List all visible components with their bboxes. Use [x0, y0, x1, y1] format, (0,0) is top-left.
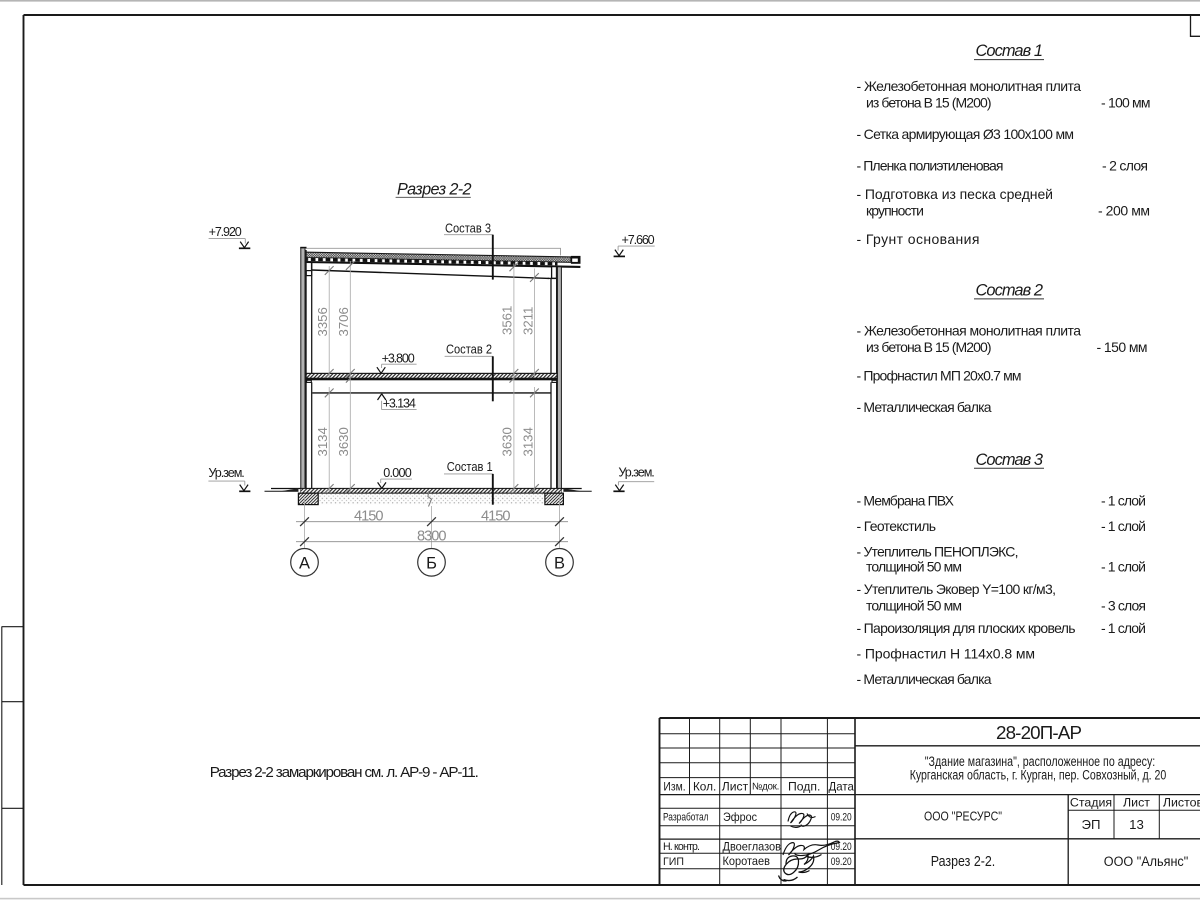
svg-text:Н. контр.: Н. контр.	[663, 841, 700, 853]
svg-text:толщиной 50 мм: толщиной 50 мм	[866, 559, 962, 575]
svg-text:Изм.: Изм.	[663, 780, 685, 794]
svg-text:- Металлическая балка: - Металлическая балка	[857, 399, 992, 415]
svg-text:- 1 слой: - 1 слой	[1101, 493, 1146, 509]
svg-text:09.20: 09.20	[831, 841, 852, 853]
svg-text:3561: 3561	[500, 306, 515, 335]
svg-text:Кол.: Кол.	[693, 780, 716, 794]
svg-text:- Профнастил МП 20х0.7 мм: - Профнастил МП 20х0.7 мм	[857, 368, 1022, 384]
svg-text:- 1 слой: - 1 слой	[1101, 518, 1146, 534]
svg-text:ООО "РЕСУРС": ООО "РЕСУРС"	[924, 809, 1002, 824]
svg-text:- Железобетонная монолитная п: - Железобетонная монолитная плита	[857, 323, 1082, 339]
svg-text:ГИП: ГИП	[663, 856, 684, 868]
svg-text:Дата: Дата	[829, 780, 854, 794]
svg-text:- Железобетонная монолитная п: - Железобетонная монолитная плита	[857, 78, 1082, 94]
svg-text:Двоеглазов: Двоеглазов	[723, 840, 782, 854]
svg-text:№док.: №док.	[752, 782, 779, 793]
svg-text:В: В	[554, 554, 565, 572]
svg-text:Стадия: Стадия	[1070, 796, 1112, 810]
svg-text:Разрез 2-2.: Разрез 2-2.	[931, 854, 996, 870]
svg-text:- Грунт основания: - Грунт основания	[857, 231, 980, 247]
svg-text:Состав 2: Состав 2	[976, 281, 1044, 299]
svg-text:- 150 мм: - 150 мм	[1097, 339, 1148, 355]
svg-text:- Металлическая балка: - Металлическая балка	[857, 671, 992, 687]
svg-text:- Сетка армирующая Ø3 100х100: - Сетка армирующая Ø3 100х100 мм	[857, 126, 1075, 142]
svg-text:из бетона В 15 (М200): из бетона В 15 (М200)	[866, 339, 992, 355]
svg-text:Ур.зем.: Ур.зем.	[618, 465, 654, 479]
svg-text:4150: 4150	[354, 508, 384, 524]
svg-text:13: 13	[1129, 817, 1144, 832]
svg-text:- Утеплитель Эковер Y=100 кг/м: - Утеплитель Эковер Y=100 кг/м3,	[857, 581, 1057, 597]
svg-text:- Мембрана ПВХ: - Мембрана ПВХ	[857, 493, 955, 509]
svg-text:3134: 3134	[521, 427, 536, 456]
svg-text:Состав 3: Состав 3	[445, 220, 491, 235]
svg-text:3706: 3706	[336, 307, 351, 336]
svg-text:Разработал: Разработал	[663, 812, 709, 824]
svg-text:3211: 3211	[521, 307, 536, 335]
svg-text:Разрез 2-2 замаркирован см. л.: Разрез 2-2 замаркирован см. л. АР-9 - АР…	[210, 764, 479, 781]
svg-text:28-20П-АР: 28-20П-АР	[996, 722, 1082, 743]
svg-text:Курганская область, г. Курган,: Курганская область, г. Курган, пер. Совх…	[910, 767, 1167, 782]
svg-text:3630: 3630	[336, 427, 351, 456]
svg-text:Состав 1: Состав 1	[447, 459, 493, 474]
svg-text:+3.800: +3.800	[382, 352, 415, 366]
svg-text:из бетона В 15 (М200): из бетона В 15 (М200)	[866, 95, 992, 111]
svg-text:А: А	[299, 554, 310, 572]
svg-text:- Подготовка из песка средней: - Подготовка из песка средней	[857, 186, 1054, 202]
svg-text:+7.660: +7.660	[622, 233, 655, 247]
svg-text:Разрез 2-2: Разрез 2-2	[397, 181, 472, 199]
svg-text:09.20: 09.20	[831, 856, 852, 868]
svg-text:ЭП: ЭП	[1082, 817, 1101, 832]
svg-text:Лист: Лист	[1123, 796, 1150, 810]
svg-text:4150: 4150	[481, 508, 511, 524]
svg-text:- Пароизоляция для плоских кро: - Пароизоляция для плоских кровель	[857, 620, 1076, 636]
svg-text:толщиной 50 мм: толщиной 50 мм	[866, 598, 962, 614]
svg-text:- Геотекстиль: - Геотекстиль	[857, 518, 937, 534]
svg-text:- 2 слоя: - 2 слоя	[1102, 158, 1148, 174]
svg-text:3134: 3134	[315, 427, 330, 456]
svg-text:- 3 слоя: - 3 слоя	[1101, 598, 1146, 614]
svg-text:- 100 мм: - 100 мм	[1101, 95, 1151, 111]
svg-text:Коротаев: Коротаев	[723, 854, 771, 868]
svg-text:- Утеплитель ПЕНОПЛЭКС,: - Утеплитель ПЕНОПЛЭКС,	[857, 544, 1019, 560]
svg-text:- Профнастил Н 114х0.8 мм: - Профнастил Н 114х0.8 мм	[857, 646, 1036, 662]
svg-text:ООО "Альянс": ООО "Альянс"	[1104, 854, 1189, 869]
svg-text:- Пленка полиэтиленовая: - Пленка полиэтиленовая	[857, 158, 1004, 174]
svg-text:3356: 3356	[315, 307, 330, 336]
svg-text:- 200 мм: - 200 мм	[1098, 203, 1150, 219]
svg-text:- 1 слой: - 1 слой	[1101, 620, 1146, 636]
svg-text:- 1 слой: - 1 слой	[1101, 559, 1146, 575]
svg-text:Состав 3: Состав 3	[976, 451, 1044, 469]
svg-text:Состав 2: Состав 2	[446, 342, 492, 357]
svg-text:0.000: 0.000	[383, 466, 412, 480]
svg-text:Лист: Лист	[722, 780, 749, 794]
svg-text:09.20: 09.20	[831, 812, 852, 824]
svg-text:3630: 3630	[500, 427, 515, 456]
svg-text:крупности: крупности	[866, 203, 924, 219]
svg-text:8300: 8300	[417, 528, 447, 544]
svg-text:Б: Б	[426, 554, 437, 572]
svg-text:Листов: Листов	[1163, 796, 1200, 810]
svg-text:Подп.: Подп.	[788, 780, 820, 794]
svg-text:+7.920: +7.920	[209, 225, 242, 239]
svg-text:Эфрос: Эфрос	[723, 810, 757, 824]
svg-text:Состав 1: Состав 1	[976, 42, 1044, 60]
svg-text:Ур.зем.: Ур.зем.	[208, 466, 244, 480]
svg-text:+3.134: +3.134	[383, 397, 416, 411]
